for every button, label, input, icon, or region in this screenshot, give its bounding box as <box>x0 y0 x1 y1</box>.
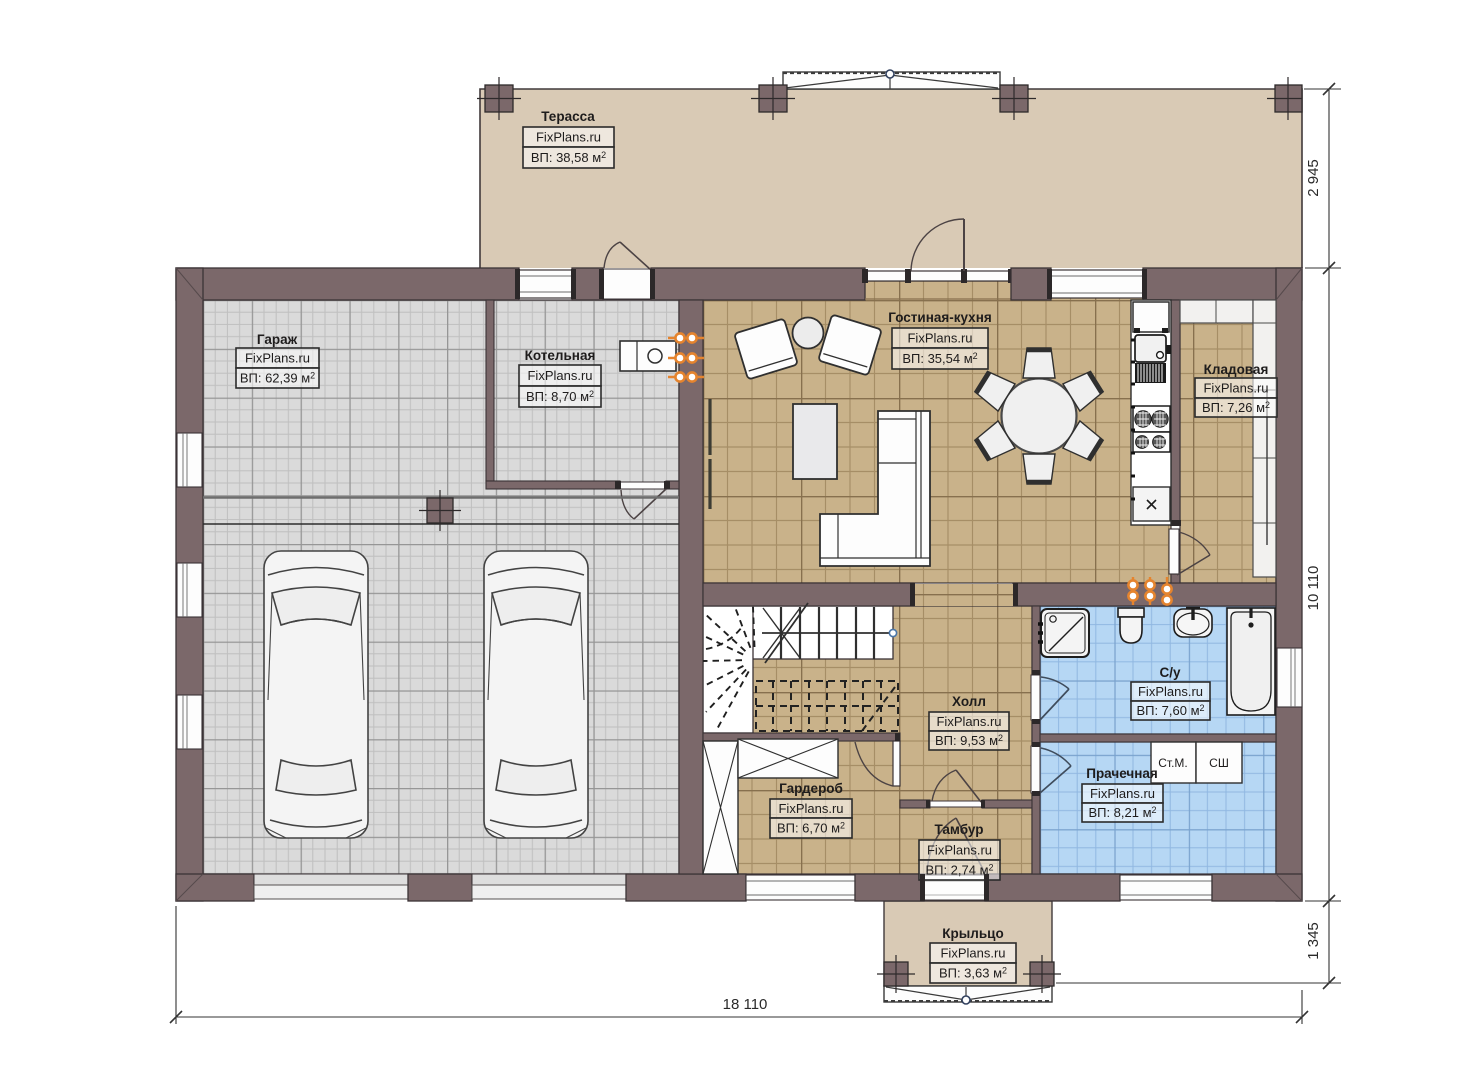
svg-text:FixPlans.ru: FixPlans.ru <box>927 843 992 858</box>
svg-text:Терасса: Терасса <box>541 109 595 124</box>
svg-text:ВП: 7,60 м2: ВП: 7,60 м2 <box>1136 703 1204 718</box>
svg-text:Гостиная-кухня: Гостиная-кухня <box>888 310 991 325</box>
svg-text:ВП: 38,58 м2: ВП: 38,58 м2 <box>531 150 606 165</box>
svg-text:ВП: 3,63 м2: ВП: 3,63 м2 <box>939 966 1007 981</box>
svg-text:FixPlans.ru: FixPlans.ru <box>907 331 972 346</box>
svg-text:ВП: 62,39 м2: ВП: 62,39 м2 <box>240 371 315 386</box>
svg-text:ВП: 8,21 м2: ВП: 8,21 м2 <box>1088 805 1156 820</box>
svg-text:Холл: Холл <box>952 694 986 709</box>
svg-text:Крыльцо: Крыльцо <box>942 926 1003 941</box>
svg-text:FixPlans.ru: FixPlans.ru <box>245 351 310 366</box>
svg-text:ВП: 9,53 м2: ВП: 9,53 м2 <box>935 733 1003 748</box>
svg-text:18 110: 18 110 <box>723 996 768 1013</box>
svg-text:Кладовая: Кладовая <box>1204 362 1269 377</box>
svg-text:FixPlans.ru: FixPlans.ru <box>536 130 601 145</box>
svg-text:FixPlans.ru: FixPlans.ru <box>936 714 1001 729</box>
svg-text:Прачечная: Прачечная <box>1086 766 1158 781</box>
svg-text:С/у: С/у <box>1159 665 1181 680</box>
svg-text:1 345: 1 345 <box>1305 922 1322 960</box>
svg-text:2 945: 2 945 <box>1305 159 1322 197</box>
svg-text:Тамбур: Тамбур <box>935 822 984 837</box>
svg-text:Гардероб: Гардероб <box>779 781 843 796</box>
svg-text:Котельная: Котельная <box>525 348 596 363</box>
svg-text:ВП: 8,70 м2: ВП: 8,70 м2 <box>526 389 594 404</box>
svg-text:FixPlans.ru: FixPlans.ru <box>1203 381 1268 396</box>
svg-text:Гараж: Гараж <box>257 332 298 347</box>
svg-text:ВП: 6,70 м2: ВП: 6,70 м2 <box>777 821 845 836</box>
svg-text:FixPlans.ru: FixPlans.ru <box>940 946 1005 961</box>
svg-text:ВП: 2,74 м2: ВП: 2,74 м2 <box>925 863 993 878</box>
svg-text:FixPlans.ru: FixPlans.ru <box>527 368 592 383</box>
svg-text:FixPlans.ru: FixPlans.ru <box>778 801 843 816</box>
svg-text:FixPlans.ru: FixPlans.ru <box>1138 684 1203 699</box>
svg-text:ВП: 35,54 м2: ВП: 35,54 м2 <box>902 351 977 366</box>
svg-text:Ст.М.: Ст.М. <box>1158 756 1188 770</box>
svg-text:FixPlans.ru: FixPlans.ru <box>1090 786 1155 801</box>
svg-text:ВП: 7,26 м2: ВП: 7,26 м2 <box>1202 400 1270 415</box>
svg-text:10 110: 10 110 <box>1305 566 1322 611</box>
svg-text:СШ: СШ <box>1209 756 1229 770</box>
